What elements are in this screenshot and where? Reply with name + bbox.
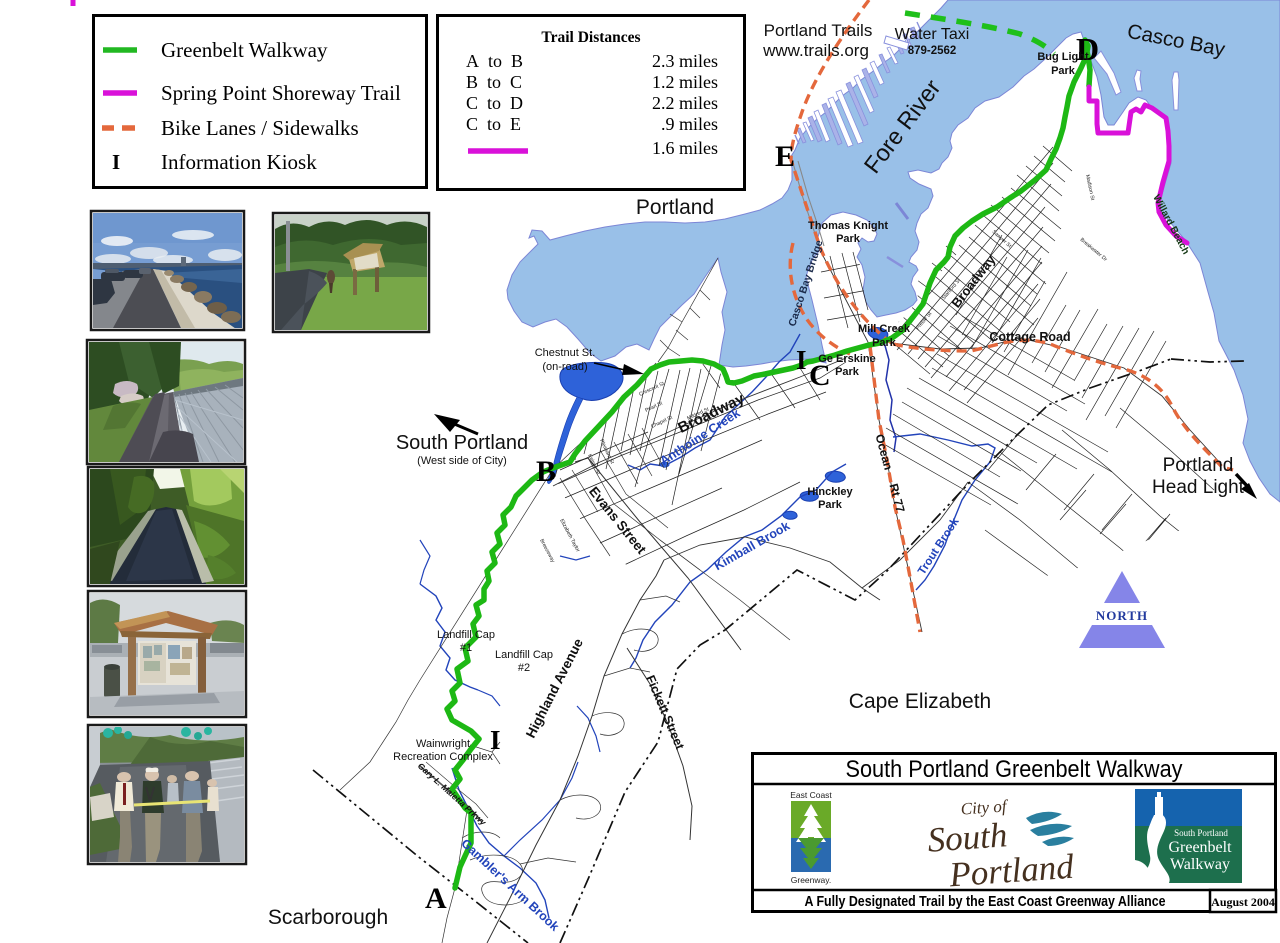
svg-text:Trout Brook: Trout Brook [916, 515, 962, 577]
svg-text:Fickett Street: Fickett Street [643, 673, 687, 752]
svg-text:Thomas Knight: Thomas Knight [808, 220, 888, 232]
svg-text:Mill Creek: Mill Creek [858, 323, 911, 335]
svg-text:A to B: A to B [466, 51, 523, 71]
svg-text:Chestnut St.: Chestnut St. [535, 347, 596, 359]
svg-text:Ge Erskine: Ge Erskine [818, 353, 875, 365]
svg-text:Park: Park [872, 337, 897, 349]
svg-text:Information Kiosk: Information Kiosk [161, 150, 317, 174]
svg-text:(West side of City): (West side of City) [417, 455, 507, 467]
svg-text:Park: Park [818, 499, 843, 511]
svg-text:A: A [425, 882, 447, 915]
svg-text:B: B [536, 455, 556, 488]
svg-text:2.3 miles: 2.3 miles [652, 51, 718, 71]
svg-text:#1: #1 [460, 642, 472, 654]
svg-text:Water Taxi: Water Taxi [895, 26, 970, 43]
svg-text:A Fully Designated Trail by th: A Fully Designated Trail by the East Coa… [805, 893, 1166, 910]
svg-text:Landfill Cap: Landfill Cap [495, 649, 553, 661]
svg-text:#2: #2 [518, 662, 530, 674]
svg-text:879-2562: 879-2562 [908, 45, 957, 57]
svg-text:Greenbelt: Greenbelt [1168, 839, 1232, 856]
svg-text:Chapel St: Chapel St [650, 415, 674, 430]
svg-text:South Portland: South Portland [1174, 828, 1228, 838]
svg-text:Cape Elizabeth: Cape Elizabeth [849, 690, 991, 713]
svg-text:Park: Park [835, 366, 860, 378]
svg-text:Rt 77: Rt 77 [886, 482, 907, 514]
svg-text:Ocean: Ocean [872, 432, 895, 471]
svg-text:Greenway.: Greenway. [791, 875, 831, 885]
svg-text:Cottage Road: Cottage Road [989, 330, 1070, 344]
svg-text:Portland Trails: Portland Trails [764, 21, 873, 40]
svg-text:Breezeway: Breezeway [538, 538, 556, 564]
svg-text:Pearl St: Pearl St [644, 400, 664, 413]
svg-text:C to E: C to E [466, 114, 521, 134]
svg-text:Madison St: Madison St [1084, 174, 1095, 201]
svg-text:B to C: B to C [466, 72, 522, 92]
svg-text:Spring Point Shoreway Trail: Spring Point Shoreway Trail [161, 81, 401, 105]
svg-text:Bug Light: Bug Light [1037, 51, 1089, 63]
svg-text:August 2004: August 2004 [1211, 895, 1275, 909]
svg-text:1.2 miles: 1.2 miles [652, 72, 718, 92]
svg-text:Sawyer St: Sawyer St [991, 229, 1013, 250]
svg-text:Bike Lanes / Sidewalks: Bike Lanes / Sidewalks [161, 116, 359, 140]
svg-text:Park: Park [1051, 65, 1076, 77]
svg-text:Trail Distances: Trail Distances [541, 29, 640, 46]
svg-text:East Coast: East Coast [790, 790, 832, 800]
svg-text:Breakwater Dr: Breakwater Dr [1079, 237, 1108, 263]
svg-text:2.2 miles: 2.2 miles [652, 93, 718, 113]
svg-text:Landfill Cap: Landfill Cap [437, 629, 495, 641]
svg-text:I: I [796, 345, 807, 375]
svg-text:Portland: Portland [636, 196, 714, 219]
svg-text:Scarborough: Scarborough [268, 906, 388, 929]
svg-text:I: I [112, 150, 120, 174]
svg-text:South Portland: South Portland [396, 432, 528, 454]
svg-text:C to D: C to D [466, 93, 523, 113]
svg-text:Park: Park [836, 233, 861, 245]
svg-text:NORTH: NORTH [1096, 608, 1148, 623]
svg-text:Greenbelt Walkway: Greenbelt Walkway [161, 38, 328, 62]
svg-text:Wainwright: Wainwright [416, 738, 470, 750]
svg-text:www.trails.org: www.trails.org [762, 41, 869, 60]
svg-text:Portland: Portland [1163, 455, 1234, 476]
svg-text:Elizabeth Taylor: Elizabeth Taylor [558, 518, 581, 553]
svg-text:(on-road): (on-road) [542, 361, 587, 373]
svg-text:1.6 miles: 1.6 miles [652, 138, 718, 158]
svg-text:.9 miles: .9 miles [661, 114, 718, 134]
svg-text:E: E [775, 140, 795, 173]
svg-text:Hinckley: Hinckley [807, 486, 853, 498]
svg-text:South Portland Greenbelt Walkw: South Portland Greenbelt Walkway [846, 756, 1183, 783]
svg-text:Walkway: Walkway [1170, 856, 1230, 873]
svg-text:Recreation Complex: Recreation Complex [393, 751, 493, 763]
svg-text:Head Light: Head Light [1152, 477, 1245, 498]
